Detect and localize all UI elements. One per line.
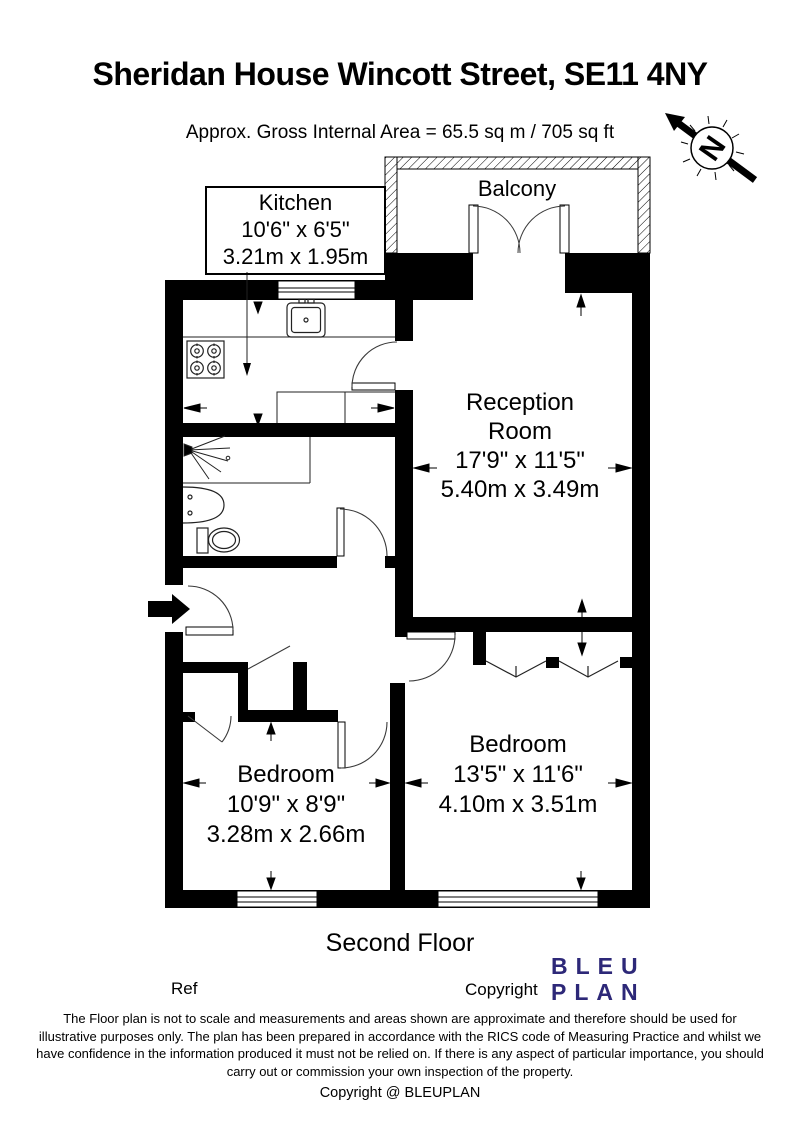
kitchen-counter [183,337,395,423]
bedroom-right-name: Bedroom [407,730,629,760]
bedroom-right-window [438,891,598,907]
disclaimer-text: The Floor plan is not to scale and measu… [0,1010,800,1080]
reception-room-label: Reception Room 17'9" x 11'5" 5.40m x 3.4… [407,388,633,504]
floor-label: Second Floor [0,929,800,958]
reception-size-metric: 5.40m x 3.49m [407,475,633,504]
bedroom-left-size-metric: 3.28m x 2.66m [186,820,386,850]
kitchen-door [352,342,397,390]
bedroom-right-label: Bedroom 13'5" x 11'6" 4.10m x 3.51m [407,730,629,820]
north-indicator: N [665,113,755,180]
floorplan-page: Sheridan House Wincott Street, SE11 4NY … [0,0,800,1132]
bedroom-left-window [237,891,317,907]
kitchen-label-box: Kitchen 10'6" x 6'5" 3.21m x 1.95m [205,186,386,275]
logo-line2: PLAN [551,979,646,1005]
balcony-french-doors [469,205,569,253]
reception-name-line1: Reception [407,388,633,417]
kitchen-name: Kitchen [207,189,384,216]
logo-line1: BLEU [551,953,646,979]
kitchen-sink-icon [287,299,325,337]
bedroom-right-size-metric: 4.10m x 3.51m [407,790,629,820]
disclaimer-line: illustrative purposes only. The plan has… [0,1028,800,1046]
entrance-door [186,586,233,635]
basin-icon [183,487,224,523]
bedroom-left-label: Bedroom 10'9" x 8'9" 3.28m x 2.66m [186,760,386,850]
entrance-arrow-icon [148,594,190,624]
ref-label: Ref [171,979,197,999]
disclaimer-line: carry out or commission your own inspect… [0,1063,800,1081]
disclaimer-line: have confidence in the information produ… [0,1045,800,1063]
copyright-label: Copyright [465,980,538,1000]
disclaimer-line: The Floor plan is not to scale and measu… [0,1010,800,1028]
toilet-icon [197,528,240,553]
kitchen-size-metric: 3.21m x 1.95m [207,243,384,270]
shower-icon [183,436,310,483]
reception-size-imperial: 17'9" x 11'5" [407,446,633,475]
stove-icon [187,341,224,378]
bedroom-right-door [407,632,455,681]
bedroom-right-size-imperial: 13'5" x 11'6" [407,760,629,790]
copyright-line: Copyright @ BLEUPLAN [0,1085,800,1101]
bleuplan-logo: BLEU PLAN [551,953,646,1005]
kitchen-window [278,281,355,299]
bedroom-left-name: Bedroom [186,760,386,790]
reception-name-line2: Room [407,417,633,446]
bedroom-left-size-imperial: 10'9" x 8'9" [186,790,386,820]
kitchen-size-imperial: 10'6" x 6'5" [207,216,384,243]
floor-plan-drawing: N [0,0,800,1132]
balcony-label: Balcony [447,176,587,202]
bathroom-door [337,508,387,556]
